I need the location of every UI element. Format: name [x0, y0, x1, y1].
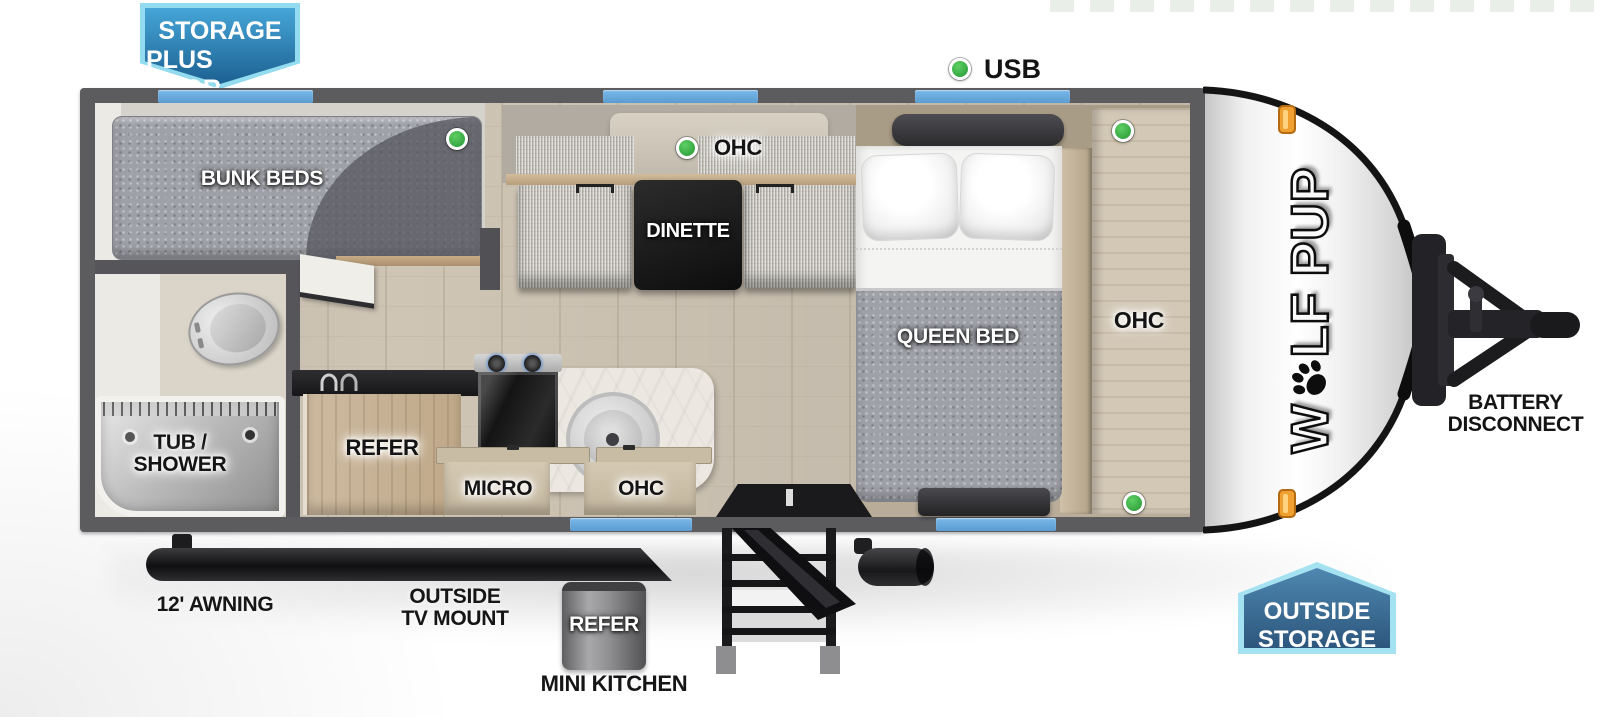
dinette-bench-right	[744, 185, 856, 288]
dinette-platform-side	[480, 228, 500, 290]
battery-disconnect-label: BATTERY DISCONNECT	[1428, 392, 1600, 436]
bedroom-usb-indicator-top	[1112, 120, 1134, 142]
badge-outside-line2: STORAGE	[1258, 626, 1376, 654]
entry-mat	[716, 484, 872, 517]
mini-refer-label: REFER	[562, 614, 646, 636]
stove-burner-left	[488, 355, 505, 372]
bedroom-usb-indicator-bottom	[1123, 492, 1145, 514]
paw-icon	[1279, 350, 1340, 411]
mini-kitchen-label: MINI KITCHEN	[528, 672, 700, 695]
pillow-right	[959, 152, 1056, 241]
queen-bed-label: QUEEN BED	[872, 326, 1044, 348]
stove-body	[478, 372, 558, 456]
dinette-bench-left	[518, 185, 632, 288]
window-top-left	[158, 90, 313, 103]
usb-indicator-legend	[949, 58, 971, 80]
badge-storage-line1: STORAGE	[158, 17, 281, 46]
badge-outside-line1: OUTSIDE	[1264, 598, 1371, 626]
dinette-label: DINETTE	[640, 221, 736, 242]
stove-burner-right	[524, 355, 541, 372]
tub-drain-grate	[103, 402, 277, 416]
tank-cylinder	[858, 548, 934, 586]
sheet-ruffle	[856, 248, 1062, 250]
sink-drain	[606, 433, 619, 446]
background-pattern	[1050, 0, 1600, 12]
brand-logo-suffix: LF PUP	[1280, 167, 1340, 358]
pillow-left	[861, 152, 960, 241]
window-bottom-bedroom	[936, 518, 1056, 531]
table-bracket-left	[576, 184, 614, 193]
faucet-icon	[318, 371, 364, 393]
bunk-beds-label: BUNK BEDS	[172, 168, 352, 190]
window-bottom-kitchen	[570, 518, 692, 531]
refer-label: REFER	[322, 436, 442, 459]
bathroom-top-wall	[95, 260, 300, 274]
queen-bed-blanket	[856, 288, 1062, 502]
floorplan-diagram: STORAGE PLUS DOOR USB BUNK BEDS TUB / SH…	[0, 0, 1600, 717]
mini-kitchen-refer: REFER	[562, 582, 646, 670]
window-top-right	[915, 90, 1070, 103]
brand-logo: W LF PUP	[1230, 150, 1390, 470]
dinette-seatback-left	[516, 136, 634, 178]
bunk-usb-indicator	[446, 128, 468, 150]
usb-legend-label: USB	[984, 54, 1041, 85]
tub-shower-label: TUB / SHOWER	[100, 432, 260, 476]
brand-logo-prefix: W	[1280, 403, 1340, 453]
awning-label: 12' AWNING	[130, 594, 300, 616]
bedroom-ohc-label: OHC	[1106, 308, 1172, 332]
awning-tube	[146, 548, 672, 581]
storage-plus-door-badge: STORAGE PLUS DOOR	[140, 3, 300, 89]
table-bracket-right	[756, 184, 794, 193]
window-top-middle	[603, 90, 758, 103]
tv-mount-label: OUTSIDE TV MOUNT	[370, 586, 540, 630]
dinette-ohc-label: OHC	[706, 136, 770, 159]
shelf-bar	[892, 114, 1064, 146]
dinette-usb-indicator	[676, 137, 698, 159]
wardrobe	[1060, 148, 1092, 514]
bed-foot-shelf	[918, 488, 1050, 516]
entry-steps	[714, 528, 856, 680]
kitchen-ohc-label: OHC	[608, 478, 674, 500]
micro-label: MICRO	[452, 478, 544, 500]
